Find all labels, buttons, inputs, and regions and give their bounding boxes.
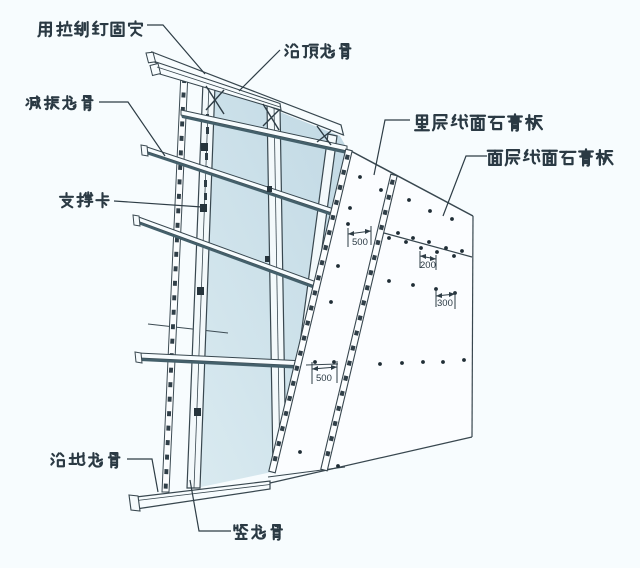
svg-text:500: 500 xyxy=(316,373,332,384)
svg-text:200: 200 xyxy=(420,260,436,271)
svg-text:300: 300 xyxy=(437,298,453,309)
svg-text:500: 500 xyxy=(352,237,368,248)
